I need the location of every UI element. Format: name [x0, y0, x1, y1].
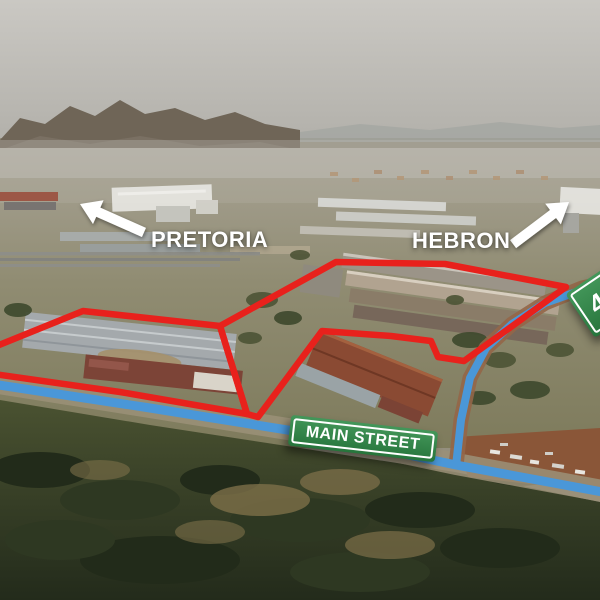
aerial-scene [0, 0, 600, 600]
aerial-photo: PRETORIA HEBRON MAIN STREET 47 [0, 0, 600, 600]
pretoria-label: PRETORIA [151, 229, 268, 251]
hebron-label: HEBRON [412, 230, 510, 252]
